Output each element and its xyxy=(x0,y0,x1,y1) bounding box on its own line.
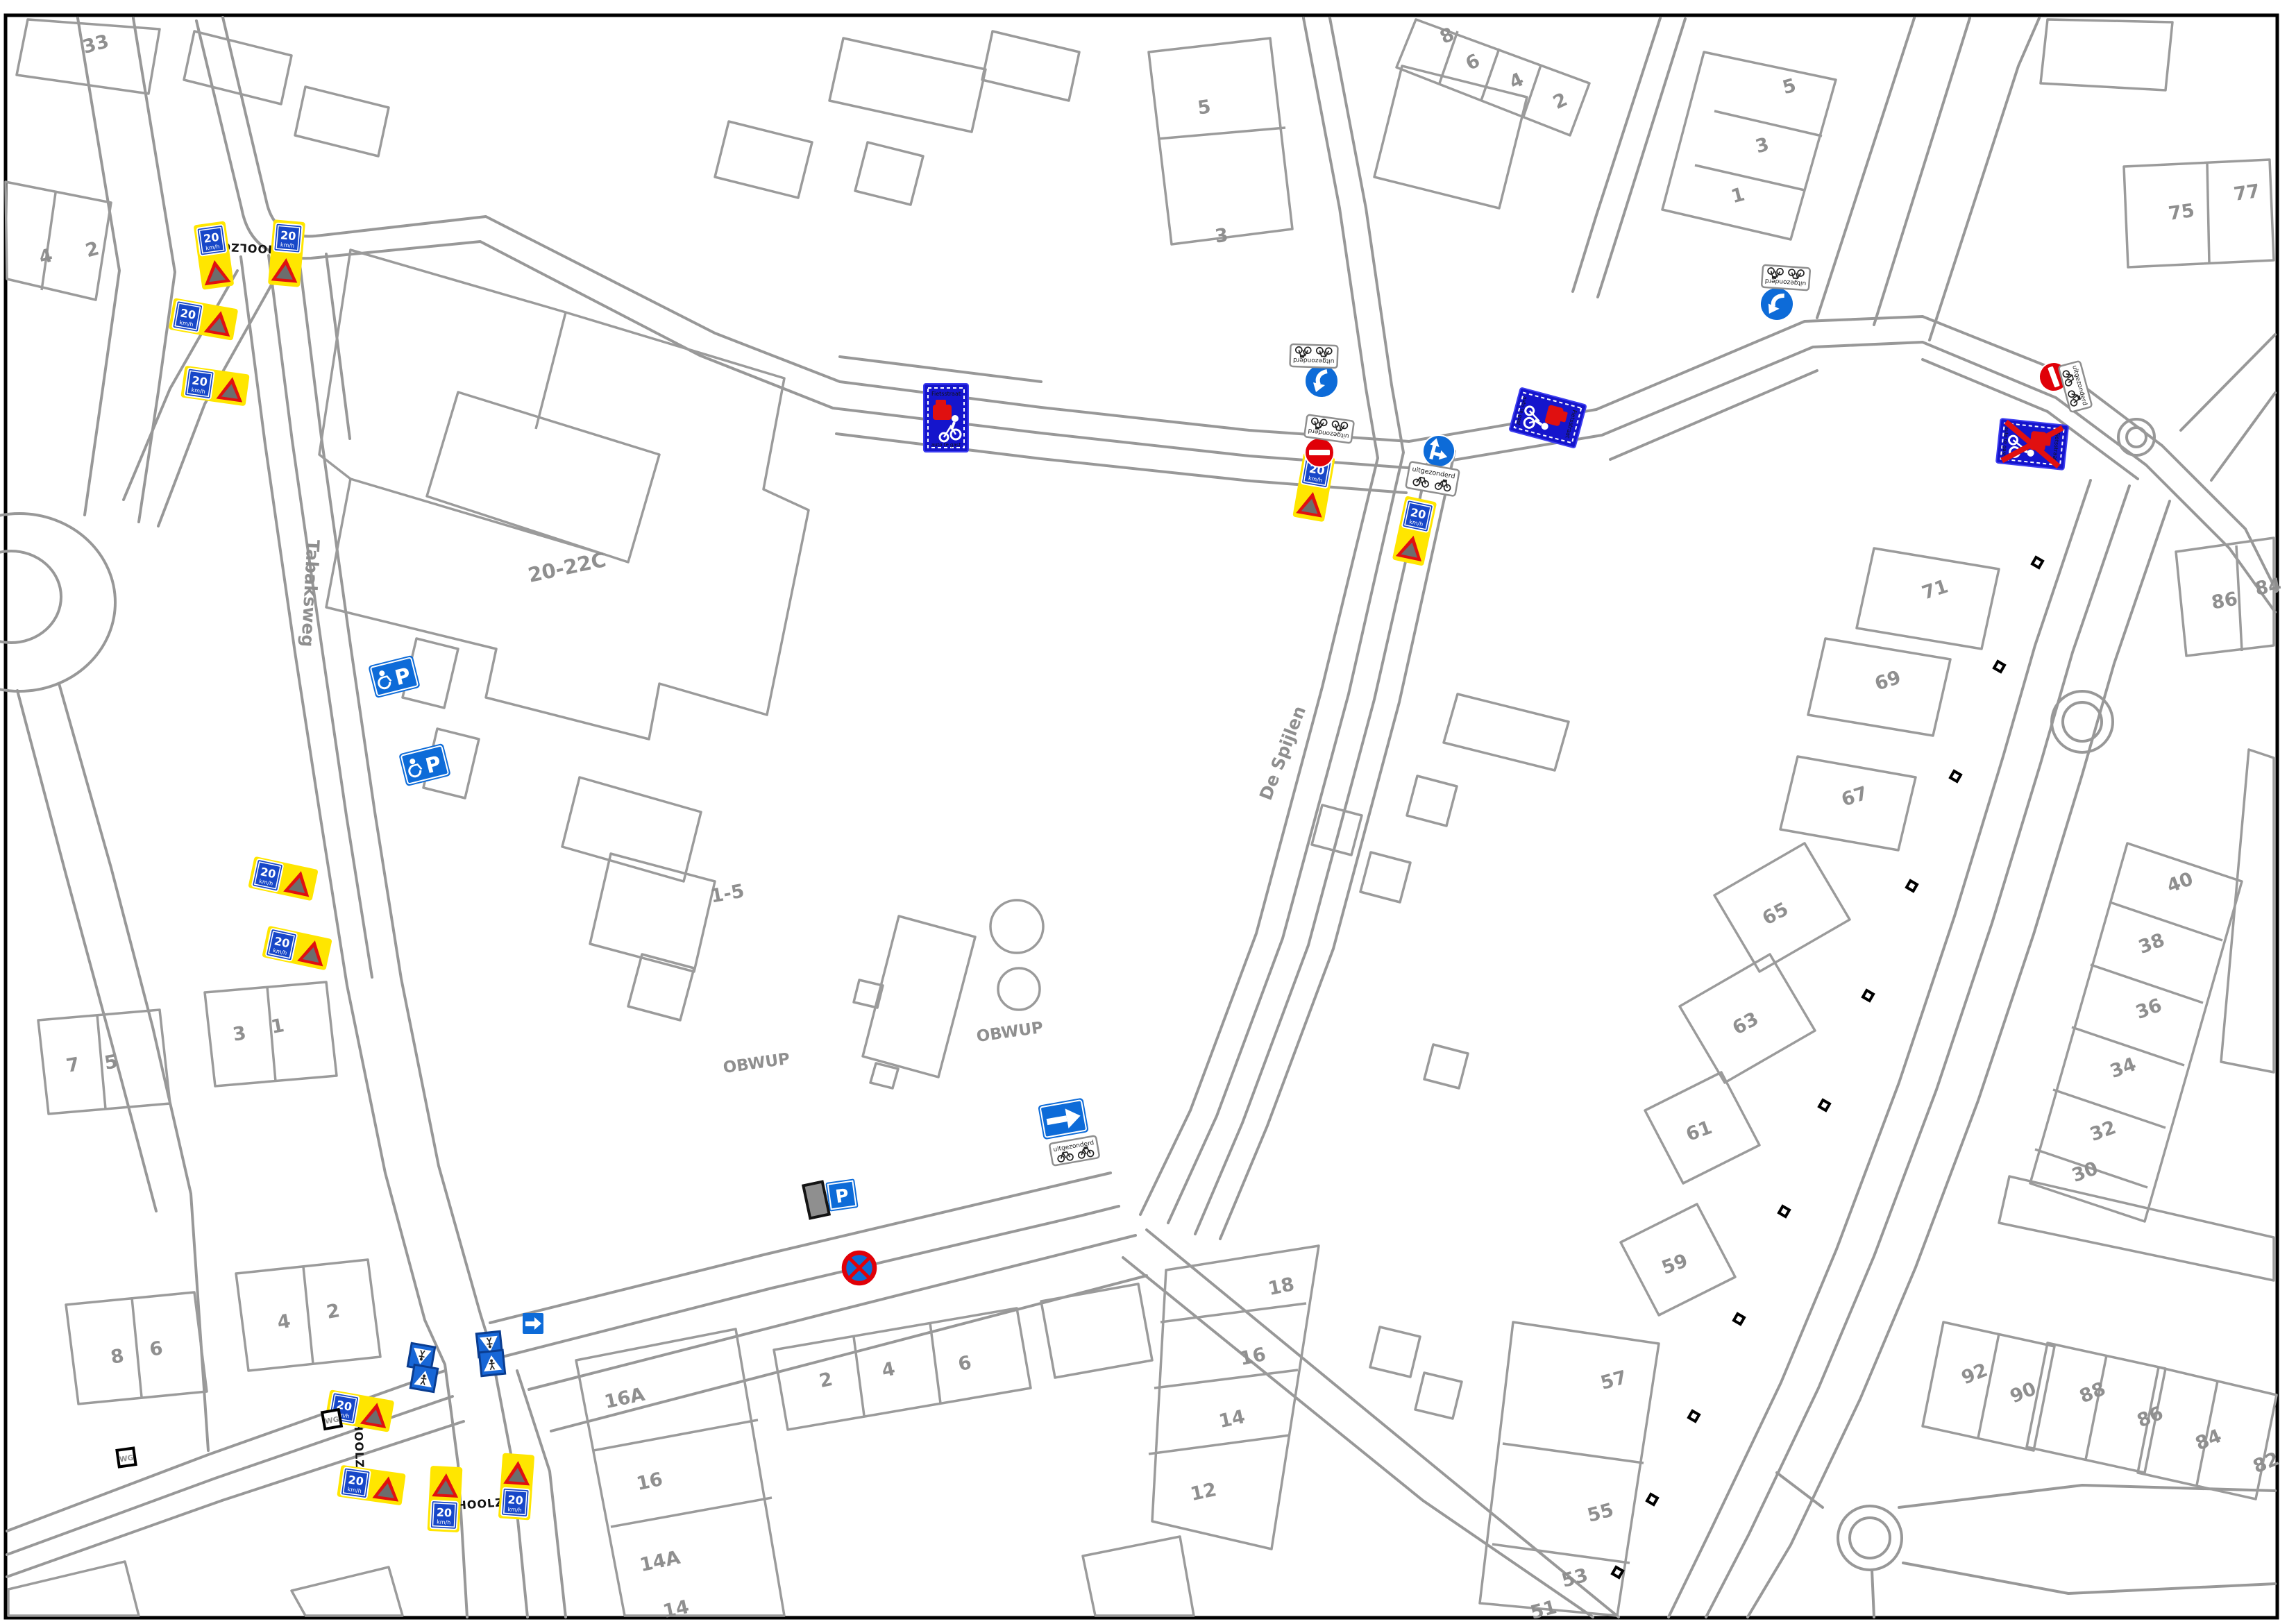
house-number-label: 6 xyxy=(1463,51,1483,74)
svg-text:Fietsstraat: Fietsstraat xyxy=(931,391,961,397)
house-number-label: 33 xyxy=(81,32,110,57)
svg-text:km/h: km/h xyxy=(507,1506,522,1513)
house-number-label: 2 xyxy=(1551,90,1570,112)
pole-marker[interactable] xyxy=(1645,1492,1659,1506)
sign-uitgezonderd-panel[interactable]: uitgezonderd xyxy=(2059,361,2093,412)
sign-one-way-small[interactable] xyxy=(523,1313,543,1334)
house-number-label: 92 xyxy=(1959,1360,1991,1387)
house-number-label: 61 xyxy=(1684,1118,1715,1144)
house-number-label: 6 xyxy=(148,1339,164,1360)
house-number-label: 5 xyxy=(103,1052,119,1073)
house-number-label: 6 xyxy=(956,1353,973,1374)
pole-marker[interactable] xyxy=(2030,555,2044,569)
house-number-label: 84 xyxy=(2193,1426,2225,1453)
house-number-label: 1 xyxy=(1729,185,1746,207)
house-number-label: 90 xyxy=(2008,1379,2039,1406)
house-number-label: 1 xyxy=(269,1016,285,1037)
pole-marker[interactable] xyxy=(1610,1565,1624,1579)
map-canvas[interactable]: 3342538642531757786847169676563615940383… xyxy=(0,0,2296,1623)
area-label: 1-5 xyxy=(709,881,746,906)
svg-text:km/h: km/h xyxy=(280,242,295,249)
sign-parking-disabled[interactable]: P xyxy=(398,743,451,787)
sign-schoolzone-20kmh[interactable]: 20km/h xyxy=(194,221,235,289)
sign-parking[interactable]: P xyxy=(825,1178,858,1211)
area-label: OBWUP xyxy=(723,1051,791,1076)
sign-wg-marker[interactable]: WG xyxy=(115,1446,137,1469)
sign-schoolzone-20kmh[interactable]: 20km/h xyxy=(169,298,239,341)
sign-fietsstraat[interactable]: Fietsstraatauto te gast xyxy=(1509,387,1586,448)
house-number-label: 63 xyxy=(1730,1009,1762,1038)
house-number-label: 2 xyxy=(818,1370,834,1391)
pole-marker[interactable] xyxy=(1992,659,2006,673)
sign-no-stopping[interactable] xyxy=(841,1250,877,1286)
sign-schoolzone-20kmh[interactable]: 20km/h xyxy=(1392,496,1437,566)
sign-fietsstraat[interactable]: Fietsstraatauto te gast xyxy=(924,384,968,452)
sign-schoolzone-20kmh[interactable]: 20km/h xyxy=(337,1465,405,1506)
svg-text:20: 20 xyxy=(436,1505,452,1519)
sign-wg-marker[interactable]: WG xyxy=(321,1408,343,1430)
sign-one-way[interactable] xyxy=(1038,1098,1089,1140)
house-number-label: 4 xyxy=(880,1360,897,1380)
house-number-label: 86 xyxy=(2135,1403,2166,1430)
house-number-label: 4 xyxy=(276,1312,292,1333)
area-label: OBWUP xyxy=(976,1020,1045,1045)
area-label: 20-22C xyxy=(526,550,608,586)
house-number-label: 5 xyxy=(1780,76,1798,98)
house-number-label: 65 xyxy=(1759,899,1791,928)
sign-uitgezonderd-panel[interactable]: uitgezonderd xyxy=(1290,344,1337,368)
house-number-label: 2 xyxy=(83,239,101,261)
sign-uitgezonderd-panel[interactable]: uitgezonderd xyxy=(1049,1135,1100,1165)
pole-marker[interactable] xyxy=(1905,879,1918,893)
svg-text:auto te gast: auto te gast xyxy=(931,442,961,448)
house-number-label: 8 xyxy=(1437,25,1457,47)
house-number-label: 51 xyxy=(1528,1598,1558,1623)
house-number-label: 71 xyxy=(1920,577,1950,602)
house-number-label: 12 xyxy=(1189,1480,1218,1504)
house-number-label: 88 xyxy=(2077,1379,2109,1406)
sign-schoolzone-20kmh[interactable]: 20km/h xyxy=(248,856,319,902)
pole-marker[interactable] xyxy=(1777,1204,1791,1218)
house-number-label: 3 xyxy=(1214,226,1229,246)
sign-pedestrian-crossing[interactable] xyxy=(479,1350,505,1376)
house-number-label: 36 xyxy=(2134,996,2165,1022)
sign-schoolzone-20kmh[interactable]: 20km/h xyxy=(180,366,249,407)
house-number-label: 77 xyxy=(2233,182,2261,204)
house-number-label: 38 xyxy=(2136,931,2168,957)
house-number-label: 86 xyxy=(2210,589,2239,612)
pole-marker[interactable] xyxy=(1732,1312,1746,1326)
pole-marker[interactable] xyxy=(1817,1098,1831,1112)
sign-parking-disabled[interactable]: P xyxy=(368,655,421,699)
house-number-label: 7 xyxy=(65,1055,81,1076)
sign-schoolzone-20kmh[interactable]: 20km/h xyxy=(268,219,305,287)
house-number-label: 82 xyxy=(2251,1449,2282,1476)
house-number-label: 14 xyxy=(1217,1407,1247,1431)
house-number-label: 8 xyxy=(109,1346,125,1367)
sign-schoolzone-20kmh[interactable]: 20km/h xyxy=(428,1466,463,1532)
house-number-label: 3 xyxy=(1753,135,1771,157)
house-number-label: 16 xyxy=(1238,1345,1267,1369)
house-number-label: 75 xyxy=(2168,201,2196,223)
sign-uitgezonderd-panel[interactable]: uitgezonderd xyxy=(1762,265,1810,291)
sign-schoolzone-20kmh[interactable]: 20km/h xyxy=(498,1453,534,1521)
house-number-label: 18 xyxy=(1267,1275,1296,1299)
house-number-label: 32 xyxy=(2088,1118,2119,1144)
pole-marker[interactable] xyxy=(1948,769,1962,783)
house-number-label: 53 xyxy=(1560,1566,1589,1591)
house-number-label: 40 xyxy=(2165,870,2196,896)
sign-fietsstraat-end[interactable]: Fietsstraatauto te gast xyxy=(1996,418,2068,470)
house-number-label: 55 xyxy=(1585,1500,1615,1525)
house-number-label: 67 xyxy=(1839,784,1870,809)
pole-marker[interactable] xyxy=(1861,988,1875,1002)
house-number-label: 2 xyxy=(325,1301,341,1322)
svg-text:km/h: km/h xyxy=(437,1519,451,1525)
house-number-label: 30 xyxy=(2070,1159,2101,1185)
house-number-label: 4 xyxy=(37,246,54,268)
sign-no-entry[interactable] xyxy=(1303,437,1335,468)
annotation-overlay: 3342538642531757786847169676563615940383… xyxy=(0,0,2296,1623)
house-number-label: 84 xyxy=(2254,575,2283,598)
house-number-label: 16A xyxy=(603,1385,647,1412)
house-number-label: 4 xyxy=(1507,70,1526,92)
house-number-label: 57 xyxy=(1598,1368,1628,1393)
house-number-label: 14 xyxy=(661,1598,691,1621)
house-number-label: 69 xyxy=(1873,668,1903,693)
house-number-label: 5 xyxy=(1197,97,1212,117)
house-number-label: 16 xyxy=(635,1470,664,1494)
sign-schoolzone-20kmh[interactable]: 20km/h xyxy=(262,926,332,971)
house-number-label: 3 xyxy=(231,1024,247,1044)
svg-text:20: 20 xyxy=(280,228,296,243)
street-name-label: De Spijlen xyxy=(1257,704,1309,802)
street-name-label: Tabaksweg xyxy=(298,539,321,648)
svg-text:uitgezonderd: uitgezonderd xyxy=(1293,356,1335,364)
svg-text:P: P xyxy=(834,1185,850,1208)
pole-marker[interactable] xyxy=(1687,1409,1700,1423)
house-number-label: 59 xyxy=(1660,1251,1691,1278)
svg-text:20: 20 xyxy=(507,1493,524,1507)
sign-pedestrian-crossing[interactable] xyxy=(410,1364,437,1392)
house-number-label: 34 xyxy=(2108,1055,2139,1081)
house-number-label: 14A xyxy=(639,1548,682,1575)
